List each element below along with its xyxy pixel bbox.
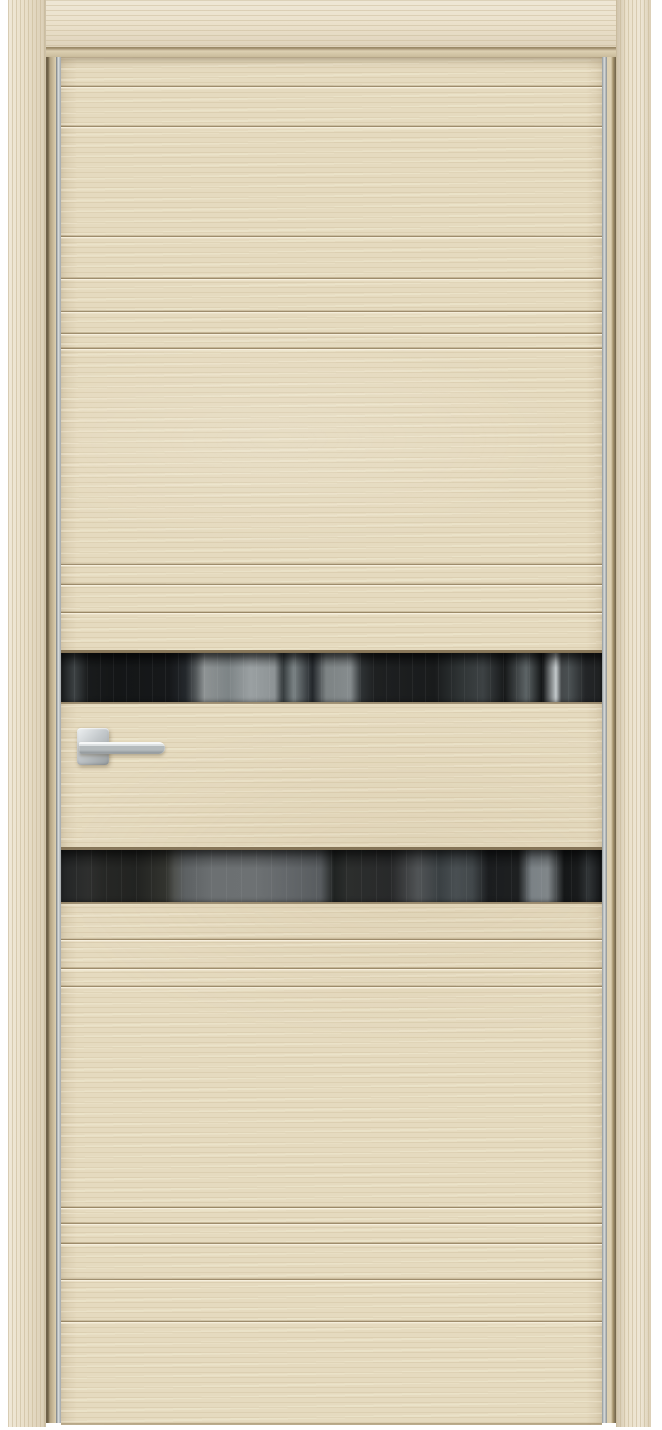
frame-gap-left — [46, 57, 56, 1423]
door-handle — [77, 728, 169, 766]
groove-line — [61, 1242, 602, 1246]
groove-line — [61, 332, 602, 336]
groove-line — [61, 611, 602, 615]
door-product-photo — [0, 0, 662, 1430]
handle-lever — [79, 742, 165, 754]
groove-line — [61, 563, 602, 567]
door-frame-casing-right — [616, 0, 651, 1427]
groove-line — [61, 347, 602, 351]
groove-line — [61, 967, 602, 971]
door-leaf — [61, 57, 602, 1425]
frame-gap-right — [607, 57, 616, 1423]
groove-line — [61, 938, 602, 942]
groove-line — [61, 1278, 602, 1282]
groove-line — [61, 985, 602, 989]
groove-line — [61, 85, 602, 89]
groove-line — [61, 1222, 602, 1226]
groove-line — [61, 125, 602, 129]
door-frame-reveal — [46, 47, 616, 57]
groove-line — [61, 277, 602, 281]
door-frame-casing-left — [8, 0, 46, 1427]
groove-line — [61, 1320, 602, 1324]
groove-line — [61, 1206, 602, 1210]
groove-line — [61, 235, 602, 239]
glass-insert-upper — [61, 653, 602, 702]
glass-insert-lower — [61, 850, 602, 902]
groove-line — [61, 583, 602, 587]
groove-line — [61, 310, 602, 314]
door-frame-header — [46, 0, 616, 49]
